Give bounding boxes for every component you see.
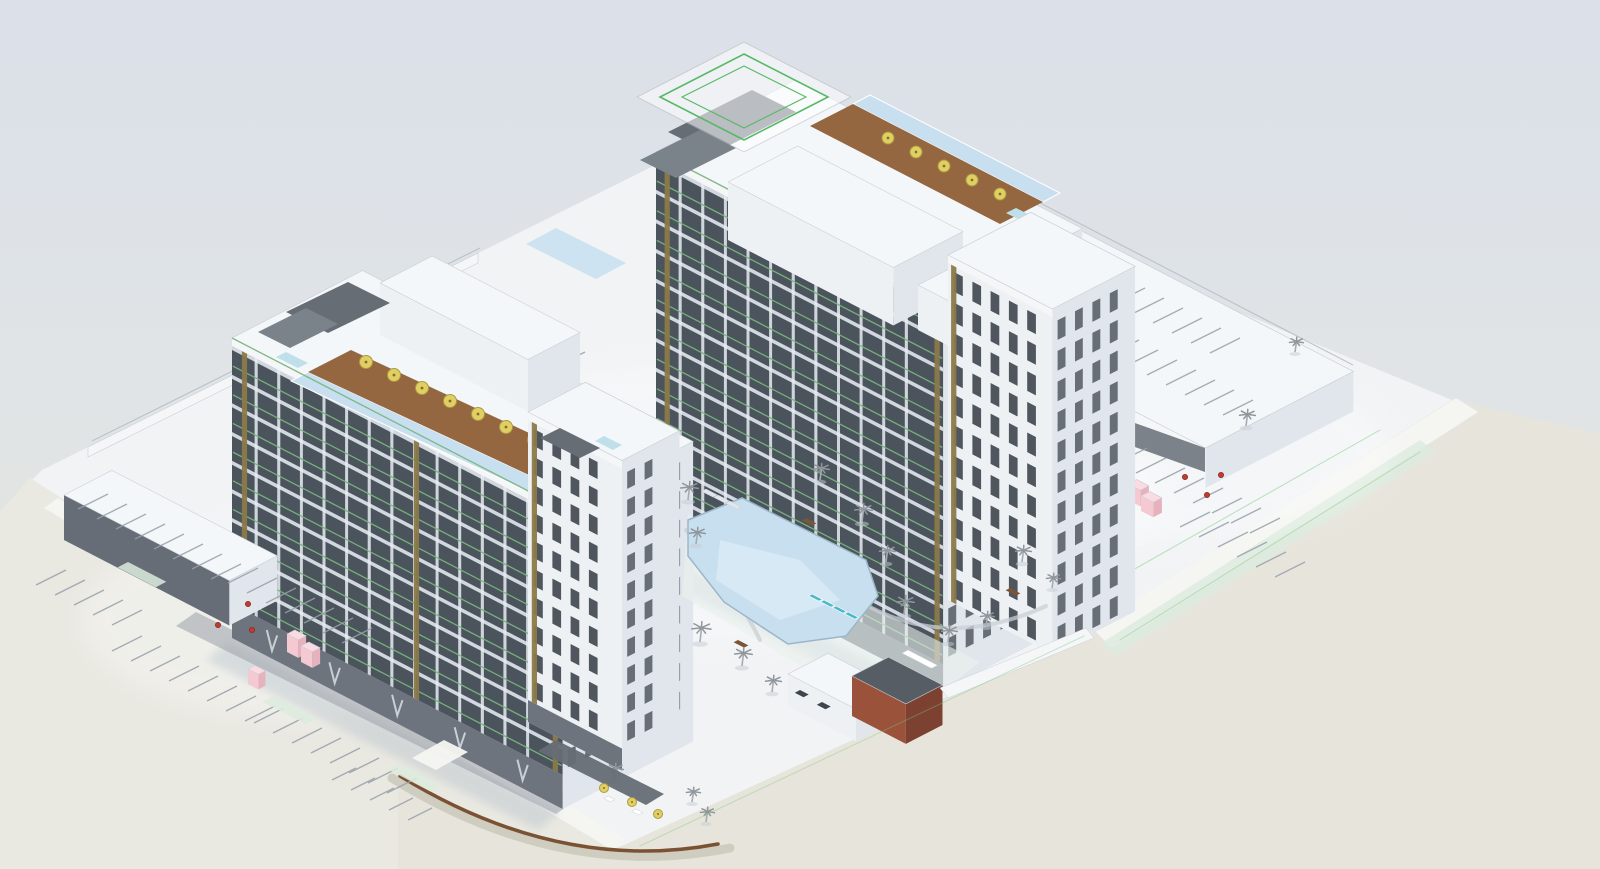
tower-east-annex bbox=[948, 212, 1135, 654]
fire-hydrant bbox=[249, 627, 254, 632]
fire-hydrant bbox=[245, 601, 250, 606]
model-viewport[interactable]: 3D axonometric BIM model of a two-tower … bbox=[0, 0, 1600, 869]
fire-hydrant bbox=[1182, 474, 1187, 479]
fire-hydrant bbox=[1218, 472, 1223, 477]
fire-hydrant bbox=[215, 622, 220, 627]
bim-3d-view[interactable] bbox=[0, 0, 1600, 869]
fire-hydrant bbox=[1204, 492, 1209, 497]
